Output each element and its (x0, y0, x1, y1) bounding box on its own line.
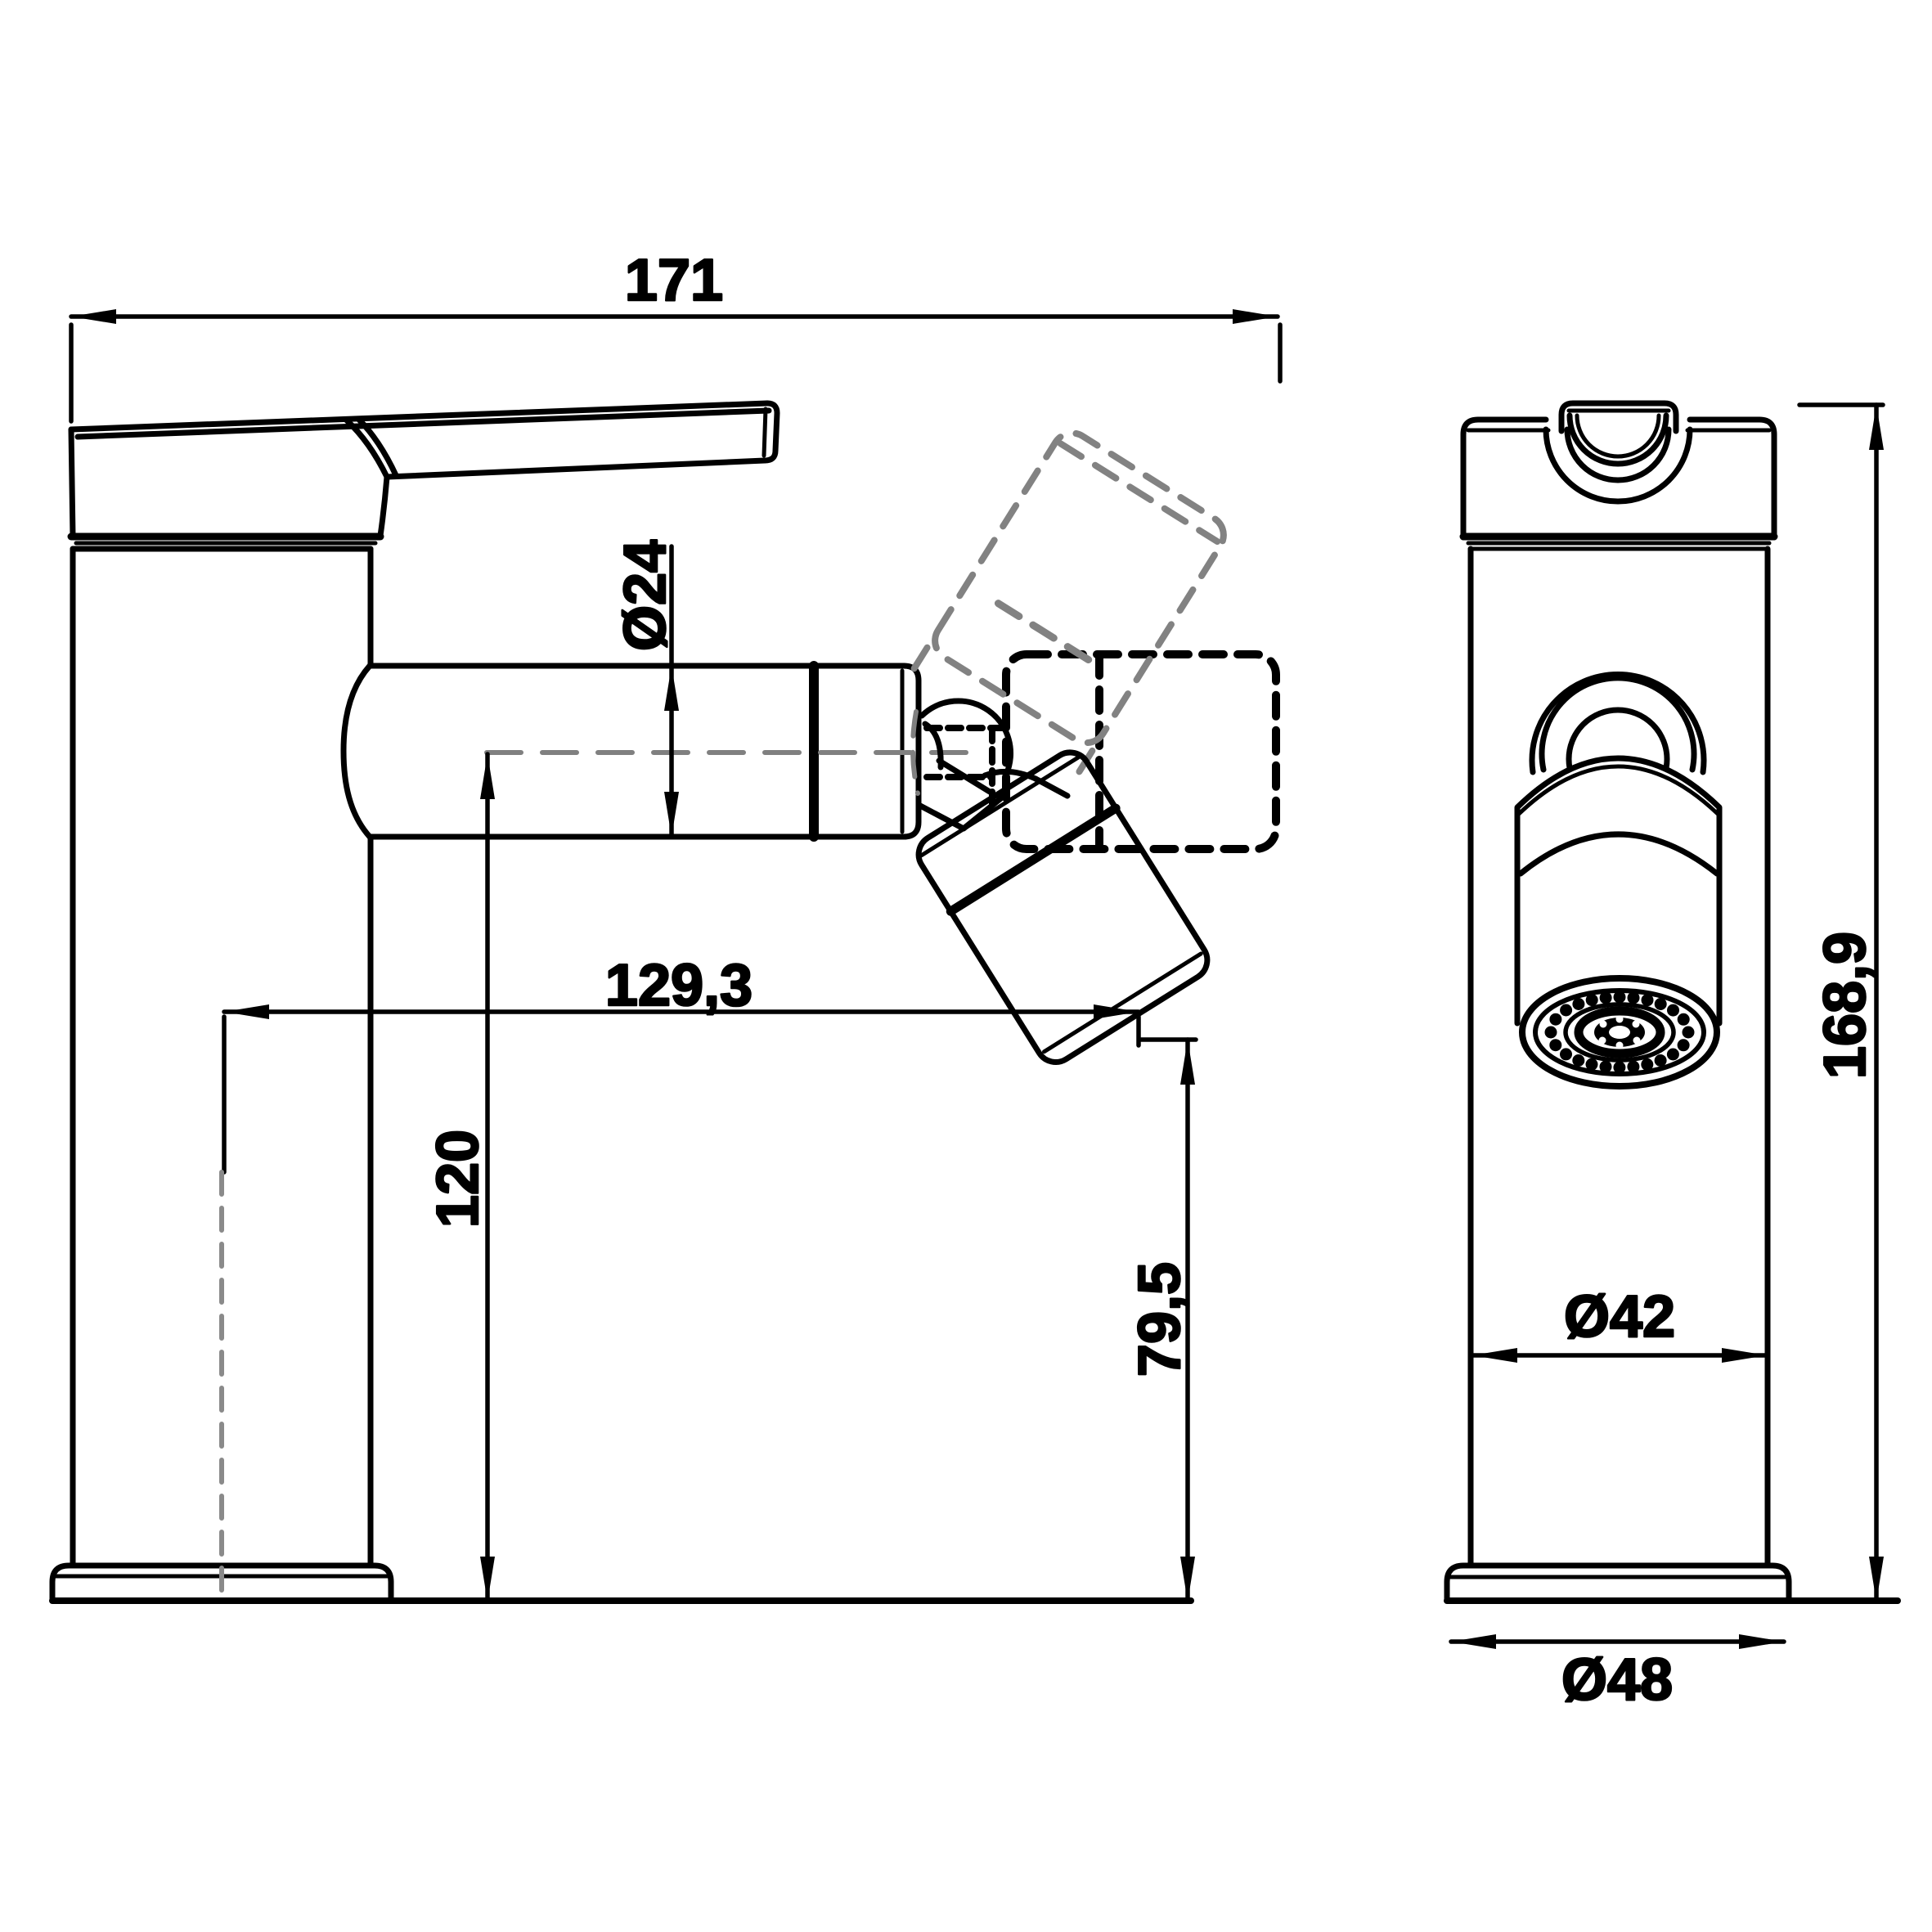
svg-text:120: 120 (425, 1130, 491, 1228)
svg-text:Ø42: Ø42 (1564, 1284, 1675, 1350)
svg-text:Ø24: Ø24 (613, 540, 678, 651)
svg-text:129,3: 129,3 (605, 953, 753, 1018)
svg-text:171: 171 (625, 248, 723, 313)
svg-text:79,5: 79,5 (1127, 1262, 1193, 1377)
svg-text:Ø48: Ø48 (1561, 1647, 1673, 1713)
svg-text:168,9: 168,9 (1813, 932, 1878, 1079)
